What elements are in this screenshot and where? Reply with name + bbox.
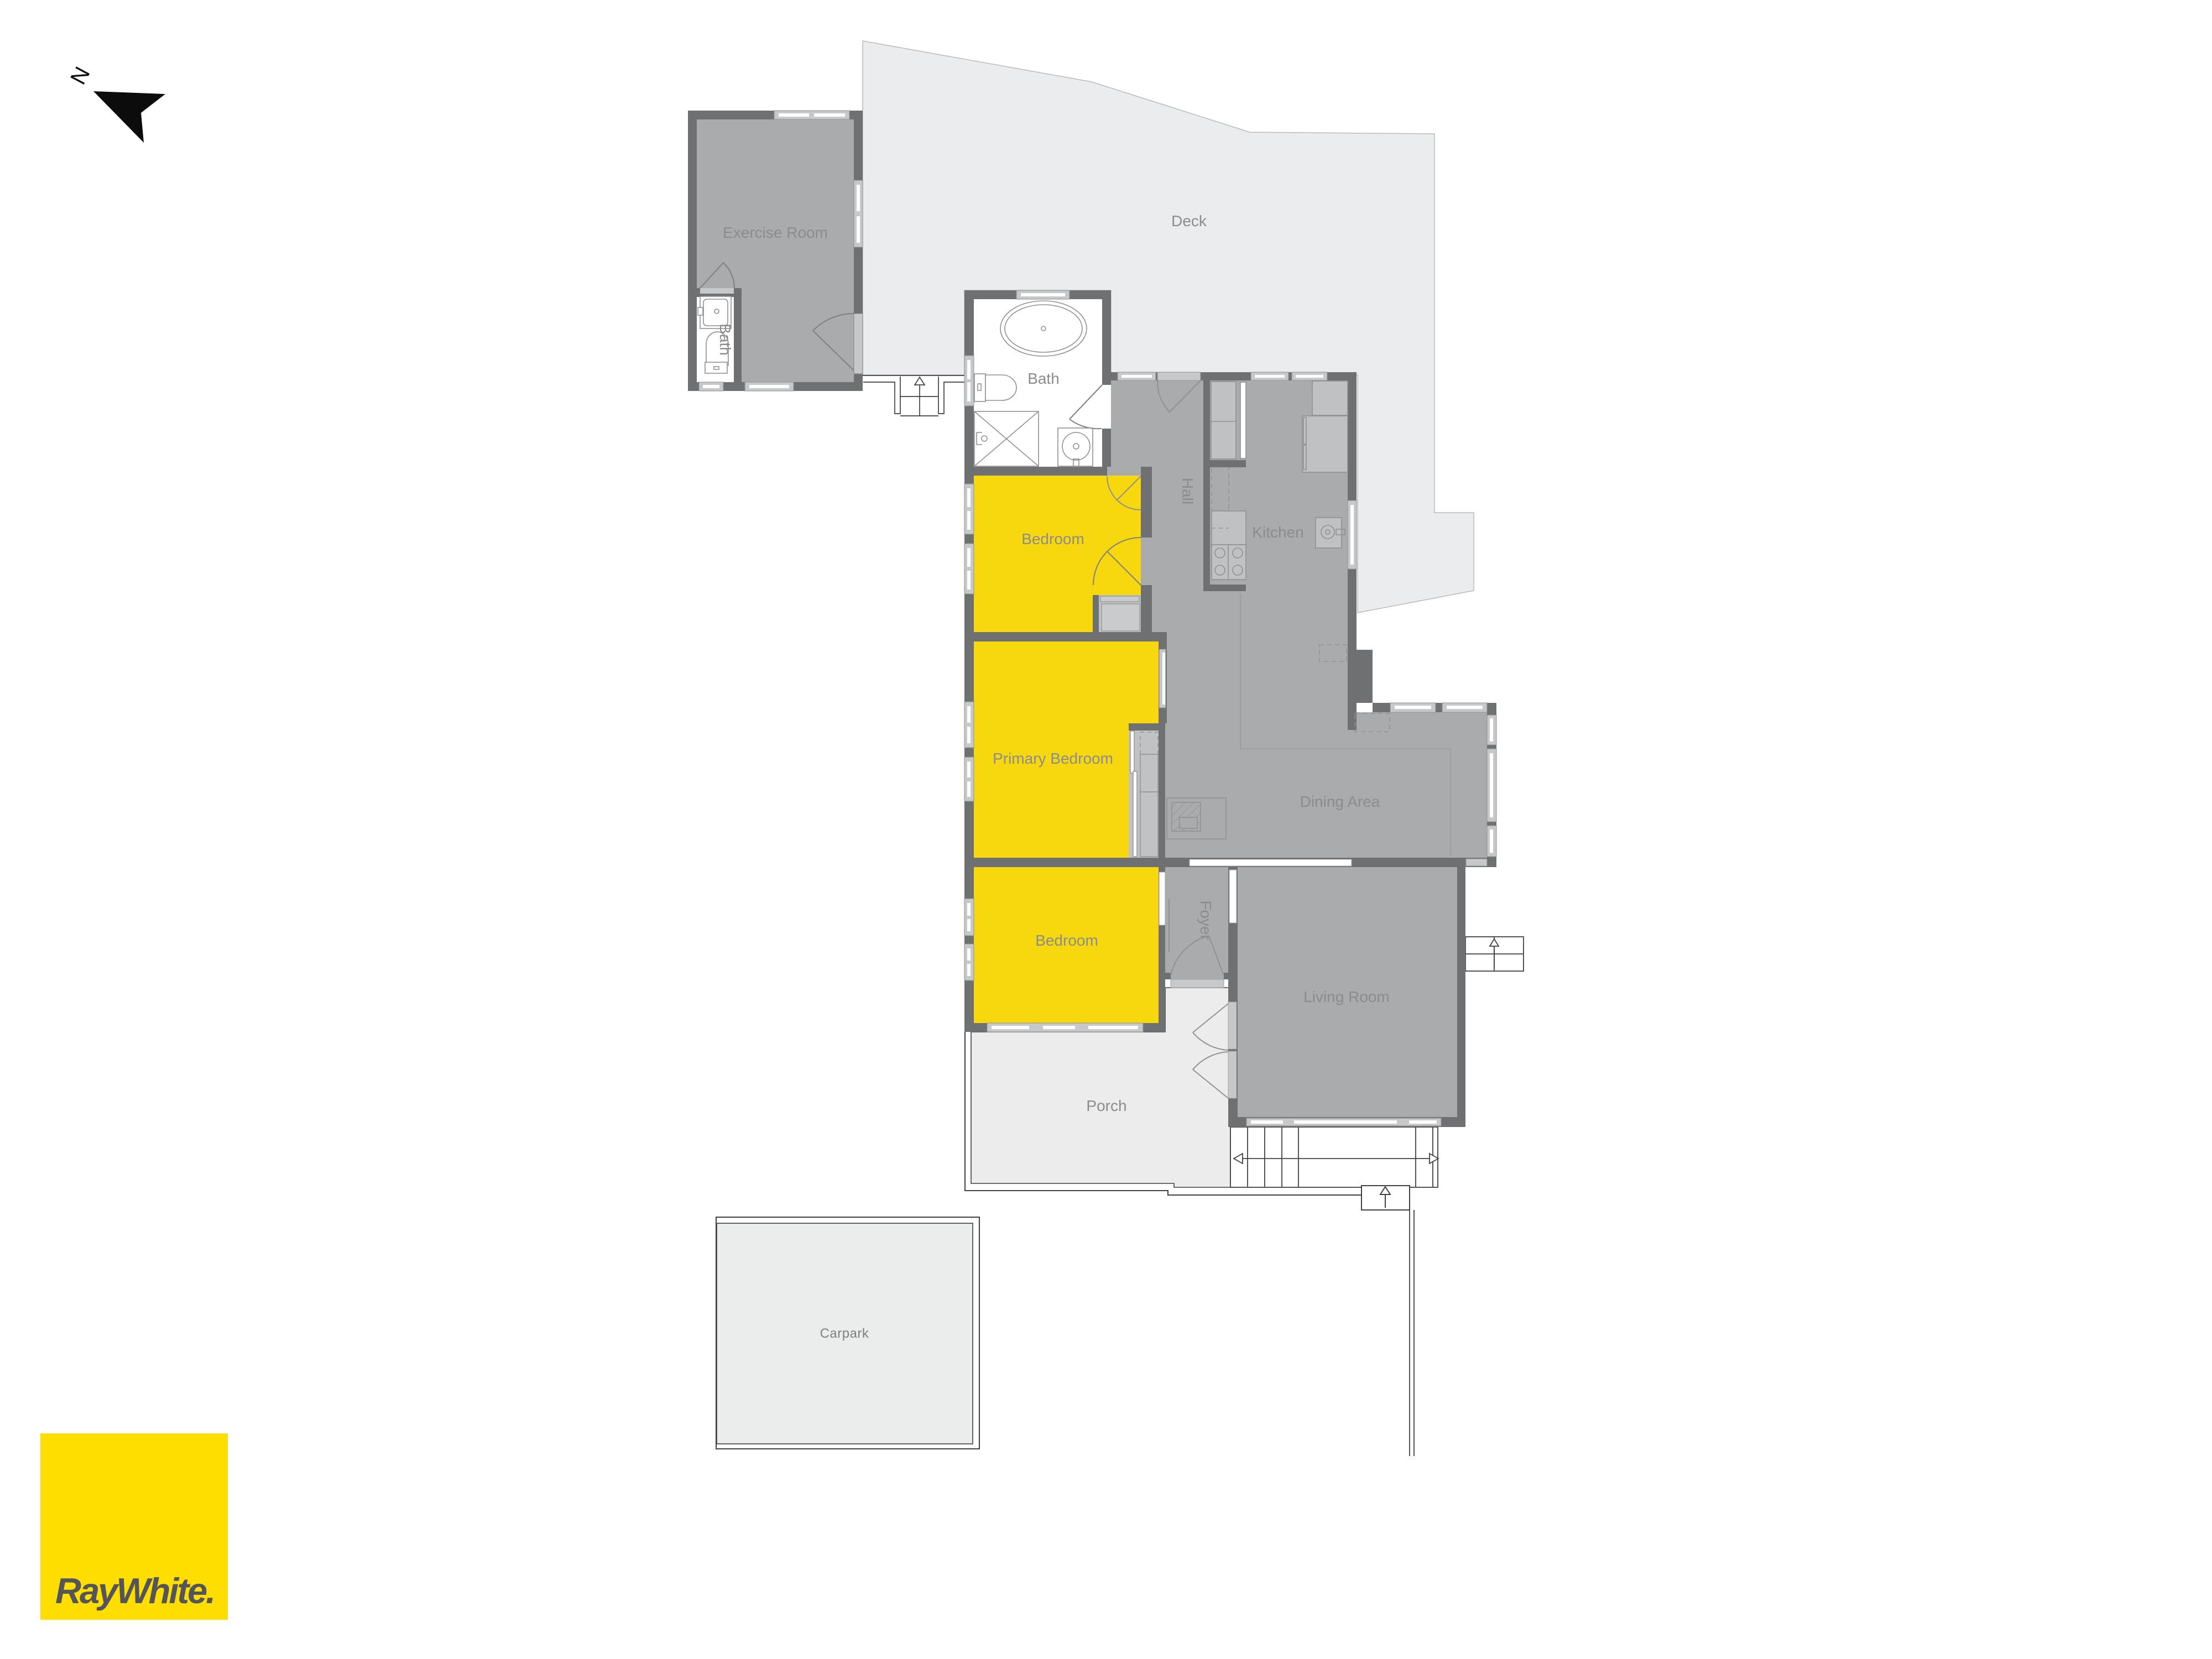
svg-text:Hall: Hall [1179, 478, 1196, 504]
svg-text:Bath: Bath [717, 324, 734, 356]
svg-text:Exercise Room: Exercise Room [723, 224, 828, 241]
svg-text:Dining Area: Dining Area [1300, 793, 1380, 810]
svg-text:Bedroom: Bedroom [1021, 530, 1084, 547]
svg-text:Deck: Deck [1171, 212, 1207, 229]
svg-text:RayWhite.: RayWhite. [55, 1571, 214, 1611]
svg-text:Carpark: Carpark [820, 1326, 869, 1341]
svg-text:Living Room: Living Room [1303, 988, 1390, 1005]
svg-text:Bath: Bath [1027, 370, 1060, 387]
svg-text:Primary Bedroom: Primary Bedroom [993, 750, 1113, 767]
svg-text:Porch: Porch [1086, 1097, 1126, 1114]
svg-text:Bedroom: Bedroom [1035, 932, 1098, 949]
svg-text:Foyer: Foyer [1197, 900, 1214, 940]
svg-text:Kitchen: Kitchen [1252, 524, 1303, 541]
svg-text:N: N [66, 63, 95, 88]
